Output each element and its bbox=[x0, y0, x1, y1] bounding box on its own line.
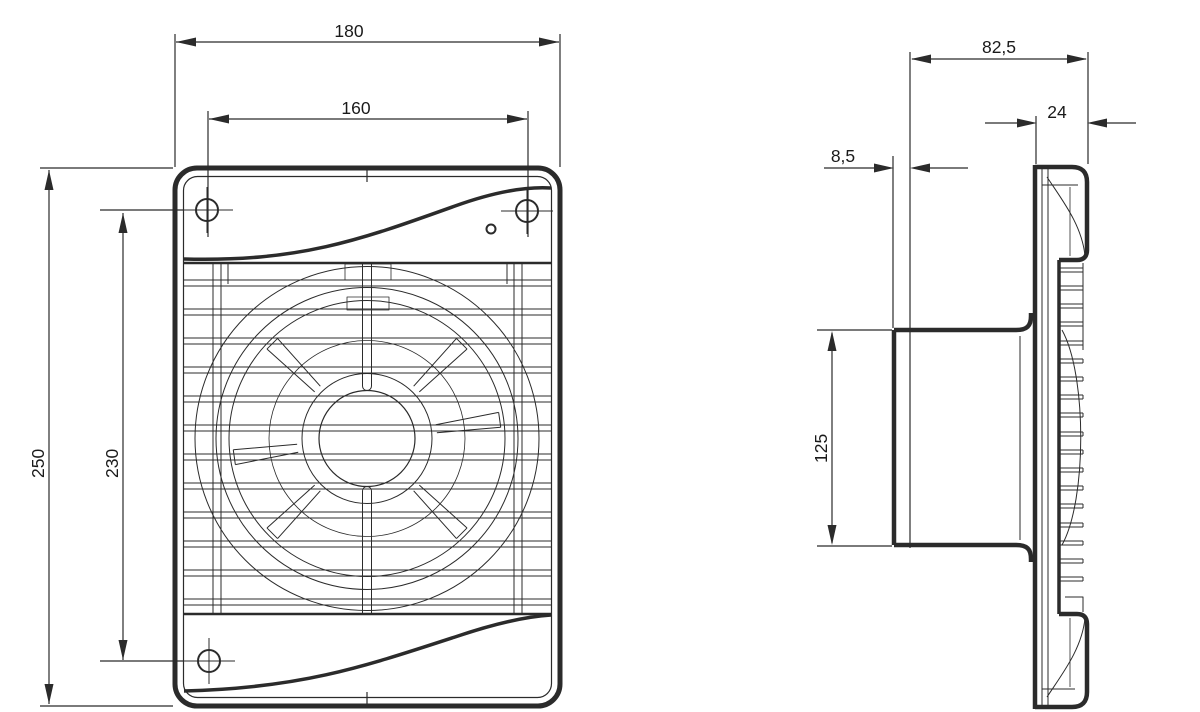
center-strut bbox=[363, 263, 372, 614]
mounting-hole-bottom-left bbox=[183, 638, 235, 684]
dim-label-spigot-diameter: 125 bbox=[811, 434, 831, 463]
louver-slats bbox=[184, 280, 551, 605]
front-width-dimension: 180 bbox=[175, 21, 560, 167]
arrowhead bbox=[1087, 119, 1107, 128]
dim-label-overall-height: 250 bbox=[28, 449, 48, 478]
side-louver-fins bbox=[1059, 263, 1083, 612]
fan-blade bbox=[411, 338, 467, 394]
side-wave-edge-top bbox=[1047, 177, 1085, 256]
fan-technical-drawing: 180 160 250 230 bbox=[0, 0, 1200, 712]
fan-blade bbox=[435, 412, 500, 436]
fan-blade bbox=[267, 338, 323, 394]
impeller bbox=[195, 267, 539, 611]
fan-blade bbox=[233, 441, 298, 465]
side-lip-dimension: 8,5 bbox=[824, 146, 968, 328]
dim-label-spigot-lip: 8,5 bbox=[831, 146, 855, 166]
side-panel-depth-dimension: 24 bbox=[985, 102, 1136, 164]
fan-blade bbox=[411, 483, 467, 539]
arrowhead bbox=[1067, 55, 1087, 64]
arrowhead bbox=[828, 331, 837, 351]
arrowhead bbox=[209, 115, 229, 124]
dim-label-overall-width: 180 bbox=[334, 21, 363, 41]
indicator-led bbox=[487, 225, 496, 234]
grille-frame-verticals bbox=[213, 263, 522, 614]
top-cover-wave bbox=[184, 188, 551, 260]
dim-label-panel-depth: 24 bbox=[1047, 102, 1067, 122]
louver-grille bbox=[184, 263, 551, 614]
arrowhead bbox=[45, 684, 54, 704]
arrowhead bbox=[1017, 119, 1037, 128]
bottom-cover-wave bbox=[184, 615, 551, 691]
grille-rib-block bbox=[347, 297, 389, 310]
arrowhead bbox=[507, 115, 527, 124]
front-body-outline bbox=[175, 168, 560, 706]
arrowhead bbox=[119, 213, 128, 233]
side-spigot-diameter-dimension: 125 bbox=[811, 330, 892, 546]
grille-dome-edge bbox=[1062, 330, 1081, 545]
dim-label-hole-spacing-h: 160 bbox=[341, 98, 370, 118]
side-body-outline bbox=[1020, 165, 1087, 709]
arrowhead bbox=[45, 170, 54, 190]
arrowhead bbox=[176, 38, 196, 47]
fan-blade bbox=[267, 483, 323, 539]
side-wave-edge-bottom bbox=[1047, 618, 1085, 697]
side-view: 82,5 24 8,5 125 bbox=[811, 37, 1136, 709]
mounting-hole-top-right bbox=[501, 188, 553, 234]
arrowhead bbox=[911, 55, 931, 64]
front-height-dimension: 250 bbox=[28, 168, 173, 706]
dim-label-overall-depth: 82,5 bbox=[982, 37, 1016, 57]
arrowhead bbox=[910, 164, 930, 173]
drawing-sheet: 180 160 250 230 bbox=[0, 0, 1200, 712]
arrowhead bbox=[874, 164, 894, 173]
front-hole-spacing-vertical-dimension: 230 bbox=[100, 210, 183, 661]
arrowhead bbox=[828, 525, 837, 545]
dim-label-hole-spacing-v: 230 bbox=[102, 449, 122, 478]
arrowhead bbox=[539, 38, 559, 47]
mounting-hole-top-left bbox=[181, 187, 233, 233]
duct-spigot bbox=[894, 313, 1031, 562]
front-view: 180 160 250 230 bbox=[28, 21, 560, 706]
arrowhead bbox=[119, 640, 128, 660]
